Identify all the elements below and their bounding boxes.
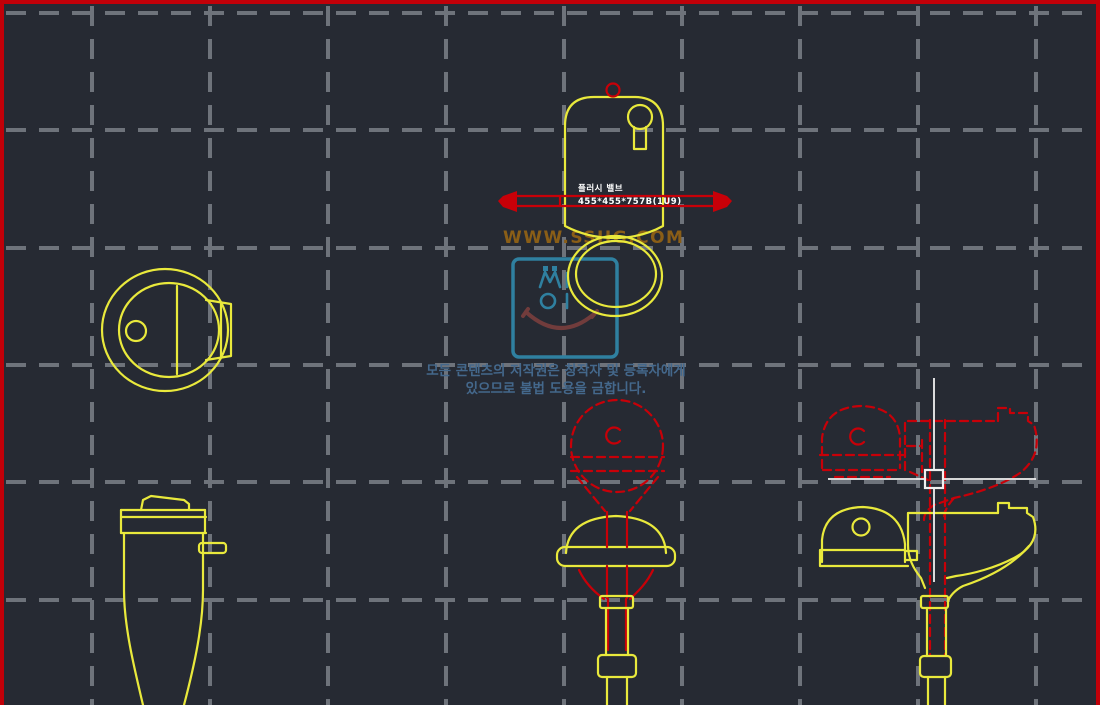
watermark-url-text: WWW.SSIIG.COM <box>503 228 684 248</box>
toilet-rear-view-yellow[interactable] <box>820 507 917 566</box>
logo-o-glyph <box>541 294 555 308</box>
bowl-side-view-center[interactable] <box>557 512 675 705</box>
toilet-side-view-red[interactable] <box>905 408 1037 655</box>
logo-dot-icon <box>552 266 557 271</box>
toilet-rear-top-view-red[interactable] <box>820 406 903 477</box>
copyright-line-2: 있으므로 불법 도용을 금합니다. <box>466 380 647 397</box>
cad-drawing-viewport[interactable]: WWW.SSIIG.COM 모든 콘텐츠의 저작권은 창작자 및 등록자에게 있… <box>0 0 1100 705</box>
block-label-line-2: 455*455*757B(1U9) <box>578 197 682 207</box>
toilet-tank-top-view[interactable] <box>565 84 663 239</box>
logo-smile-icon <box>526 312 594 328</box>
logo-m-glyph <box>540 272 560 287</box>
toilet-side-view-yellow[interactable] <box>908 503 1035 705</box>
bowl-top-view-center[interactable] <box>571 400 664 511</box>
block-label-line-1: 플러시 밸브 <box>578 183 623 194</box>
copyright-line-1: 모든 콘텐츠의 저작권은 창작자 및 등록자에게 <box>426 362 685 379</box>
logo-dot-icon <box>543 266 548 271</box>
copyright-watermark: 모든 콘텐츠의 저작권은 창작자 및 등록자에게 있으므로 불법 도용을 금합니… <box>426 362 685 397</box>
